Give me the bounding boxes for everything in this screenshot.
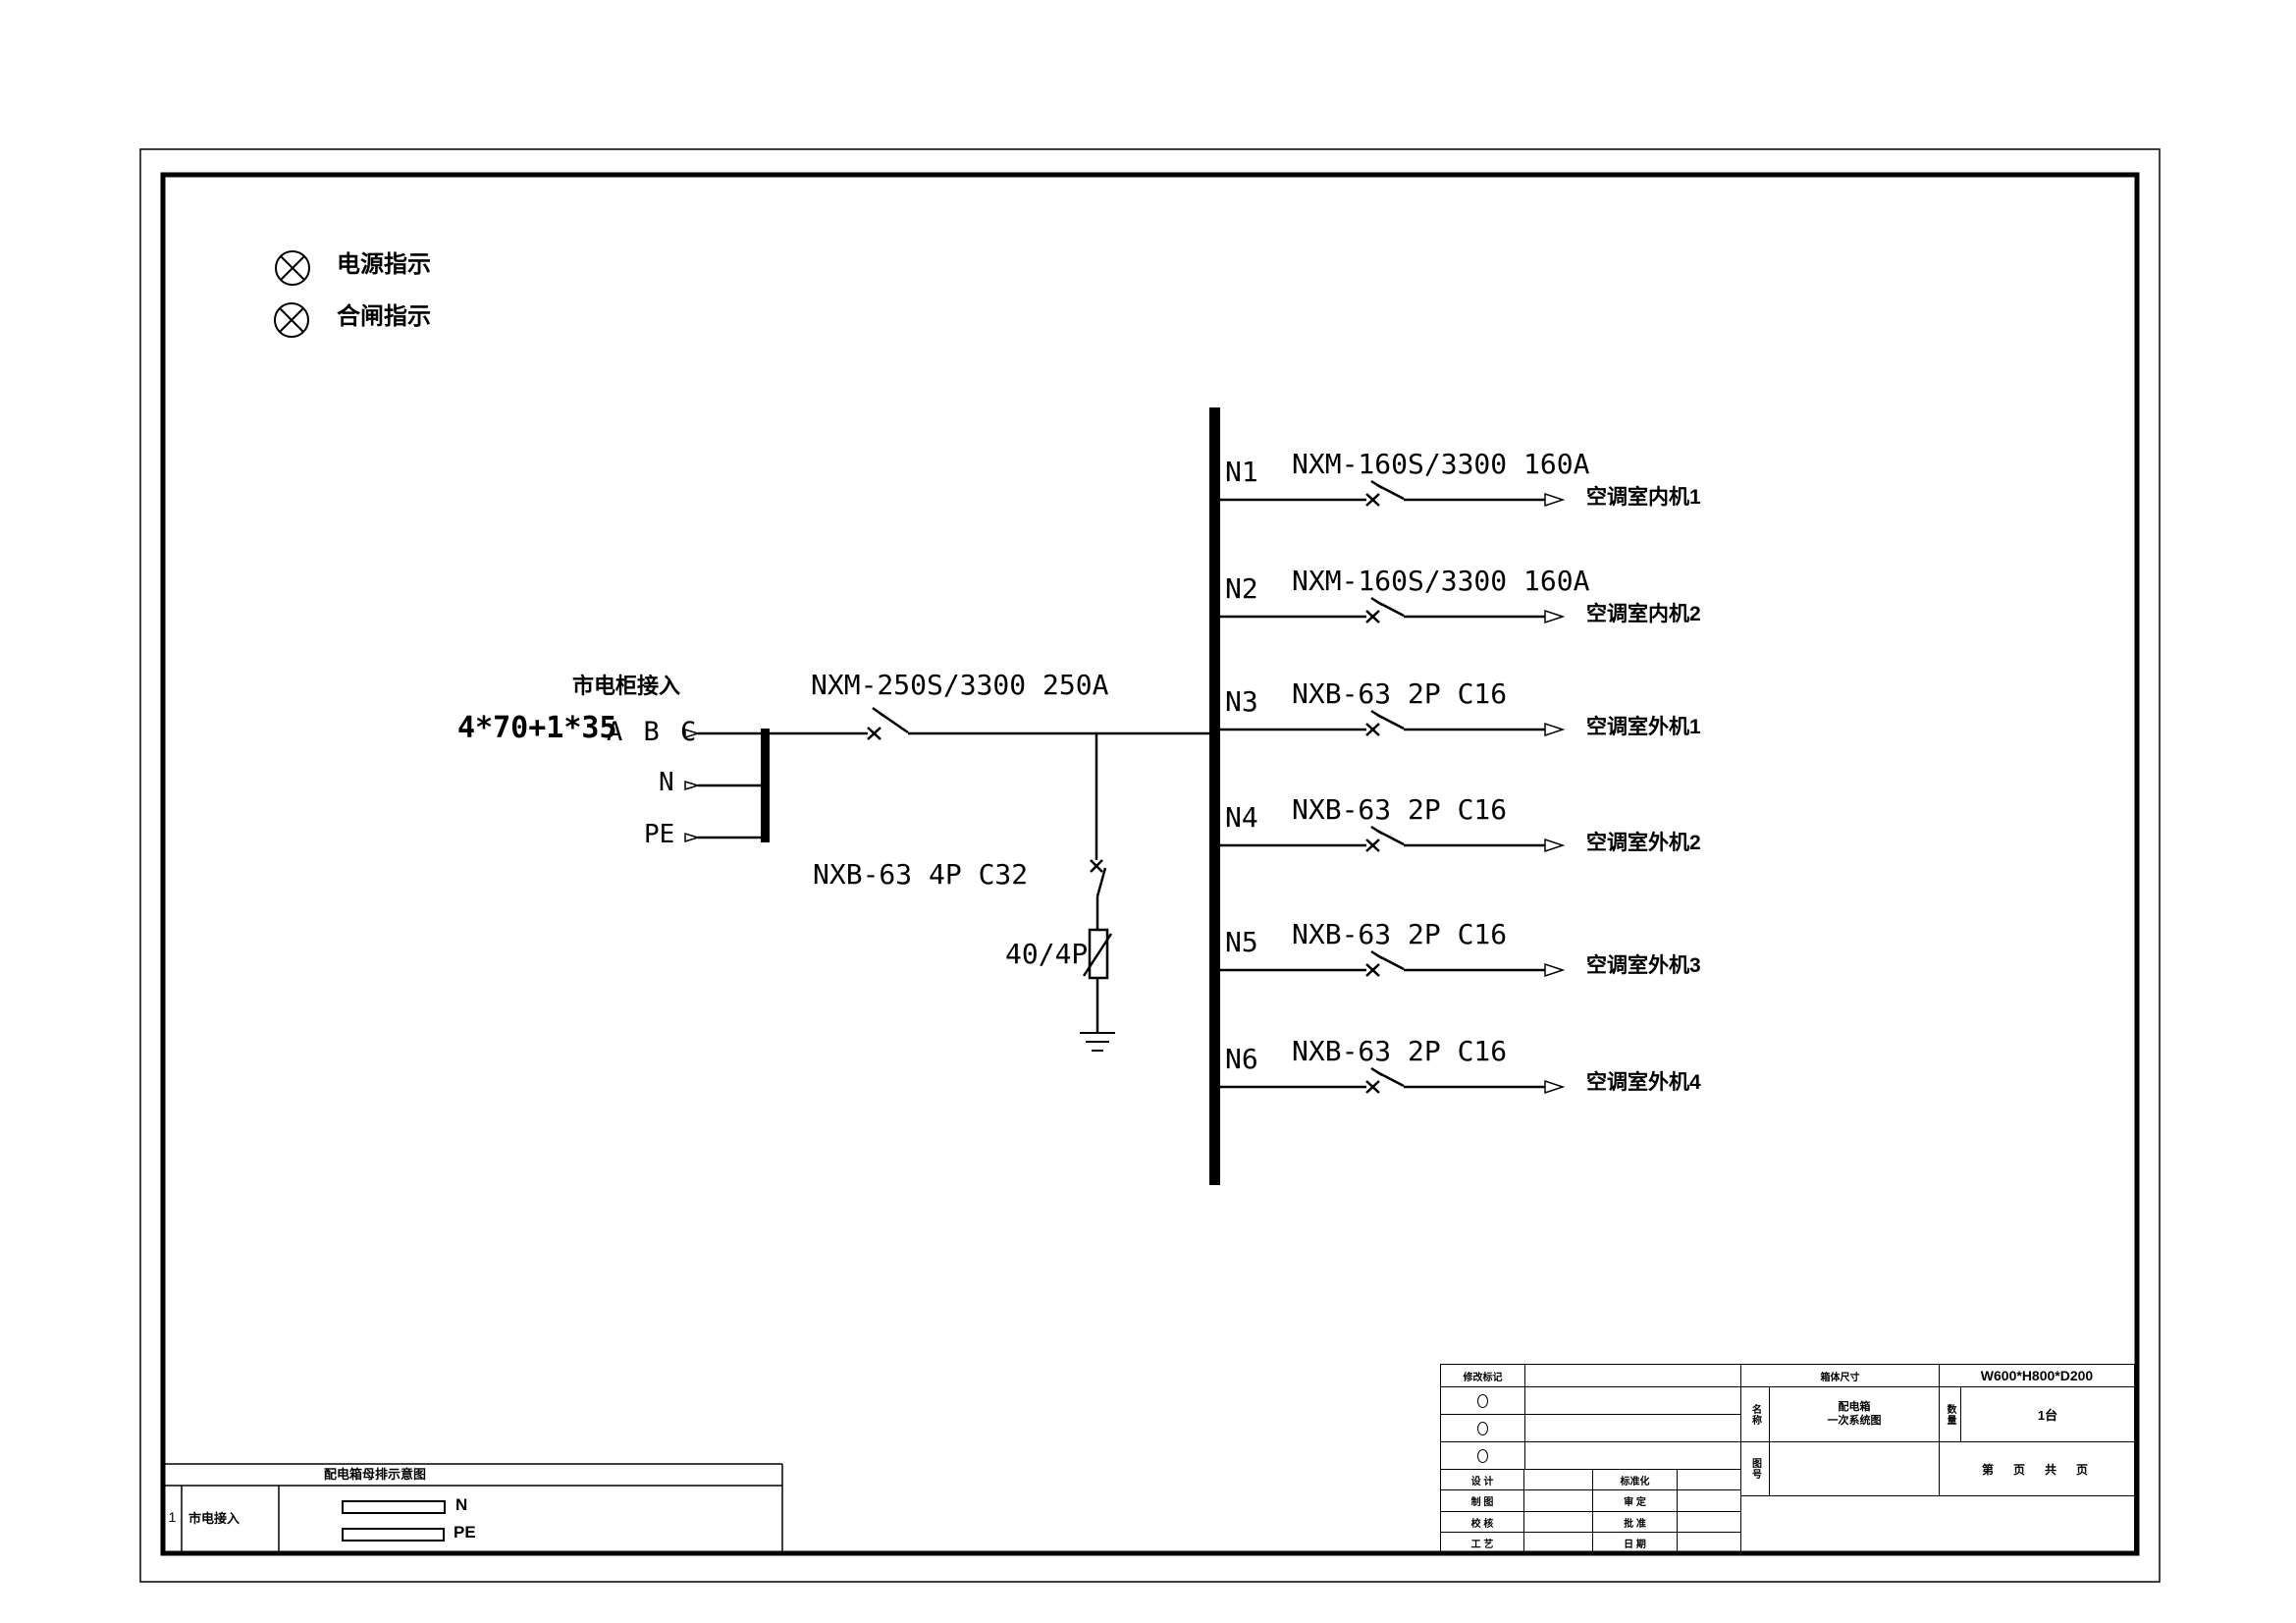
titleblock-fig-value [1769,1441,1940,1496]
neutral-bar-symbol [342,1500,446,1514]
titleblock-name-line2: 一次系统图 [1828,1415,1882,1429]
titleblock-sign-label: 工 艺 [1440,1532,1524,1553]
pe-label: PE [644,822,674,847]
revision-circle-icon [1477,1449,1488,1463]
titleblock-sign-blank [1677,1489,1741,1512]
spd-breaker-model: NXB-63 4P C32 [813,861,1028,889]
frame-inner [163,175,2137,1553]
branch-breaker-model: NXB-63 2P C16 [1292,796,1507,824]
incoming-source-label: 市电柜接入 [572,676,680,697]
titleblock-sign-blank [1677,1532,1741,1553]
branch-breaker-model: NXM-160S/3300 160A [1292,451,1589,478]
branch-circuit-n6 [1220,1068,1563,1093]
titleblock-sign-blank [1677,1511,1741,1533]
branch-load-label: 空调室外机2 [1586,833,1701,853]
titleblock-sign-label: 制 图 [1440,1489,1524,1512]
titleblock-sign-blank [1523,1511,1593,1533]
branch-arrow-icon [1545,611,1563,622]
branch-load-label: 空调室外机4 [1586,1072,1701,1093]
drawing-canvas: 电源指示 合闸指示 市电柜接入 4*70+1*35 A B C N PE NXM… [0,0,2296,1623]
main-breaker-symbol [770,708,1209,739]
branch-circuit-n4 [1220,827,1563,851]
titleblock-blank-cell [1740,1495,2135,1553]
titleblock-page-cell: 第 页 共 页 [1939,1441,2135,1496]
branch-id: N4 [1225,804,1258,832]
neutral-bar-label: N [455,1496,467,1513]
branch-id: N2 [1225,575,1258,603]
titleblock-fig-label: 图号 [1740,1441,1770,1496]
branch-circuit-n1 [1220,481,1563,506]
titleblock-revision-cell [1440,1441,1525,1470]
branch-breaker-model: NXB-63 2P C16 [1292,921,1507,948]
titleblock-revision-cell [1440,1414,1525,1442]
branch-load-label: 空调室内机1 [1586,487,1701,508]
branch-id: N1 [1225,459,1258,486]
phase-label: A B C [607,719,696,745]
branch-breaker-model: NXB-63 2P C16 [1292,680,1507,708]
titleblock-size-header: 箱体尺寸 [1740,1364,1940,1387]
neutral-label: N [659,770,674,795]
legend-table-title: 配电箱母排示意图 [167,1468,583,1481]
lamp-icon [276,251,309,285]
branch-load-label: 空调室内机2 [1586,604,1701,624]
titleblock-sign-label: 日 期 [1592,1532,1678,1553]
legend-row-number: 1 [163,1510,182,1524]
branch-id: N3 [1225,688,1258,716]
pe-bar-symbol [342,1528,445,1542]
lamp-label-closing: 合闸指示 [337,305,431,329]
titleblock-blank-cell [1524,1441,1741,1470]
lamp-label-power: 电源指示 [337,253,431,277]
titleblock-name-line1: 配电箱 [1839,1401,1871,1415]
titleblock-sign-label: 批 准 [1592,1511,1678,1533]
titleblock-name-label: 名称 [1740,1386,1770,1442]
branch-arrow-icon [1545,1081,1563,1093]
titleblock-blank-cell [1524,1386,1741,1415]
titleblock-sign-blank [1523,1489,1593,1512]
branch-circuit-n3 [1220,711,1563,735]
titleblock-blank-cell [1524,1414,1741,1442]
spd-branch [1084,733,1111,1032]
branch-breaker-model: NXB-63 2P C16 [1292,1038,1507,1065]
titleblock-revision-header: 修改标记 [1440,1364,1525,1387]
titleblock-size-value: W600*H800*D200 [1939,1364,2135,1387]
branch-id: N5 [1225,929,1258,956]
revision-circle-icon [1477,1394,1488,1408]
branch-circuit-n5 [1220,951,1563,976]
spd-rating: 40/4P [1005,941,1088,968]
titleblock-revision-cell [1440,1386,1525,1415]
branch-arrow-icon [1545,494,1563,506]
titleblock-sign-blank [1523,1469,1593,1490]
titleblock-sign-label: 审 定 [1592,1489,1678,1512]
incoming-lines [698,733,761,838]
titleblock-sign-label: 校 核 [1440,1511,1524,1533]
legend-row-label: 市电接入 [188,1512,240,1525]
titleblock-blank-cell [1524,1364,1741,1387]
titleblock-qty-value: 1台 [1960,1386,2135,1442]
ground-icon [1080,1033,1115,1051]
main-breaker-model: NXM-250S/3300 250A [811,672,1108,699]
busbar [1209,407,1220,1185]
branch-load-label: 空调室外机3 [1586,955,1701,976]
branch-circuit-n2 [1220,598,1563,622]
titleblock-sign-label: 标准化 [1592,1469,1678,1490]
titleblock-sign-blank [1523,1532,1593,1553]
branch-id: N6 [1225,1046,1258,1073]
pe-bar-label: PE [454,1524,476,1541]
incoming-cable-spec: 4*70+1*35 [457,714,617,743]
titleblock-sign-blank [1677,1469,1741,1490]
titleblock-sign-label: 设 计 [1440,1469,1524,1490]
branch-arrow-icon [1545,839,1563,851]
revision-circle-icon [1477,1422,1488,1435]
incoming-tie-bar [761,729,770,842]
titleblock-qty-label: 数量 [1939,1386,1961,1442]
branch-breaker-model: NXM-160S/3300 160A [1292,568,1589,595]
lamp-icon [275,303,308,337]
branch-arrow-icon [1545,964,1563,976]
branch-arrow-icon [1545,724,1563,735]
branch-load-label: 空调室外机1 [1586,717,1701,737]
